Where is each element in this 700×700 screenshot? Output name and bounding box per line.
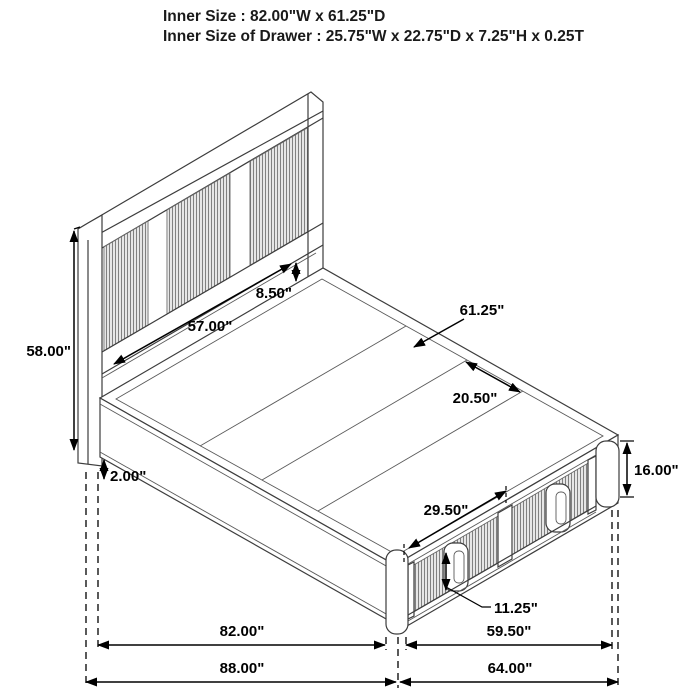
dimension-headboard-height: 58.00" [26, 227, 80, 450]
label-floor-clearance: 2.00" [110, 468, 146, 485]
bed-dimension-diagram-page: Inner Size : 82.00"W x 61.25"D Inner Siz… [0, 0, 700, 700]
dimension-deck-depth: 61.25" [414, 302, 504, 347]
label-inner-width: 82.00" [220, 623, 265, 640]
label-deck-depth: 61.25" [460, 302, 505, 319]
label-overall-depth: 64.00" [488, 660, 533, 677]
drawer-handle-left [444, 543, 468, 591]
label-side-height: 16.00" [634, 462, 679, 479]
headboard-slat-panel-left [104, 221, 148, 351]
dimension-drawer-side-length: 59.50" [406, 623, 612, 645]
headboard-left-leg [78, 215, 102, 466]
label-headboard-panel-width: 57.00" [188, 318, 233, 335]
label-drawer-front-height: 11.25" [494, 600, 538, 617]
drawer-stile-right [588, 456, 596, 514]
dimension-overall-depth: 64.00" [400, 660, 618, 682]
headboard-slat-panel-right [250, 128, 308, 266]
headboard-slat-panel-middle [167, 173, 230, 314]
label-drawer-side-length: 59.50" [487, 623, 532, 640]
label-drawer-front-width: 29.50" [424, 502, 469, 519]
footboard-corner-post [386, 550, 408, 634]
dimension-headboard-deck-gap: 8.50" [256, 263, 296, 302]
drawer-stile-middle [498, 505, 512, 567]
label-overall-width: 88.00" [220, 660, 265, 677]
label-headboard-deck-gap: 8.50" [256, 285, 292, 302]
dimension-overall-width: 88.00" [86, 660, 396, 682]
label-deck-board-width: 20.50" [453, 390, 498, 407]
label-headboard-height: 58.00" [26, 343, 71, 360]
drawer-stile-left [408, 562, 414, 619]
bed-isometric-drawing: 58.00" 2.00" 57.00" 8.50" 61.25" [0, 0, 700, 700]
right-corner-post [596, 441, 619, 507]
dimension-side-height: 16.00" [620, 441, 679, 497]
dimension-inner-width: 82.00" [98, 623, 385, 645]
drawer-handle-right [546, 484, 570, 532]
